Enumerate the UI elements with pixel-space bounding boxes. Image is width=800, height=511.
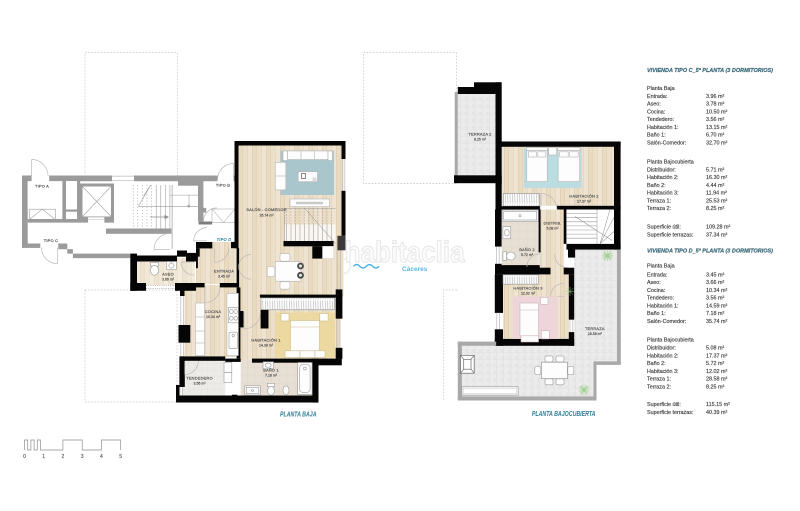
svg-text:3.45 m²: 3.45 m²: [706, 273, 724, 279]
svg-text:3.66 m²: 3.66 m²: [706, 280, 724, 286]
svg-text:3.56 m²: 3.56 m²: [706, 117, 724, 123]
svg-text:TIPO D: TIPO D: [217, 237, 232, 242]
svg-text:7.18 m²: 7.18 m²: [265, 374, 278, 378]
svg-text:13.15 m²: 13.15 m²: [706, 125, 727, 131]
svg-text:Entrada:: Entrada:: [647, 273, 667, 279]
svg-text:10.34 m²: 10.34 m²: [206, 315, 221, 319]
svg-text:Habitación 1:: Habitación 1:: [647, 125, 678, 131]
svg-text:109.28 m²: 109.28 m²: [706, 225, 730, 231]
svg-text:8.25 m²: 8.25 m²: [706, 384, 724, 390]
svg-text:HABITACIÓN 3: HABITACIÓN 3: [513, 285, 543, 290]
svg-text:25.53 m²: 25.53 m²: [706, 198, 727, 204]
svg-text:11.94 m²: 11.94 m²: [706, 191, 727, 197]
svg-text:HABITACIÓN 2: HABITACIÓN 2: [569, 194, 599, 199]
svg-text:4.44 m²: 4.44 m²: [706, 183, 724, 189]
svg-text:Terraza 1:: Terraza 1:: [647, 377, 671, 383]
svg-text:17.37 m²: 17.37 m²: [577, 200, 592, 204]
svg-text:TENDEDERO: TENDEDERO: [186, 376, 212, 381]
svg-text:14.59 m²: 14.59 m²: [706, 303, 727, 309]
svg-text:3.96 m²: 3.96 m²: [706, 94, 724, 100]
svg-text:Distribuidor:: Distribuidor:: [647, 346, 676, 352]
svg-text:SALÓN - COMEDOR: SALÓN - COMEDOR: [246, 207, 286, 212]
svg-text:Terraza 2:: Terraza 2:: [647, 206, 671, 212]
svg-text:5.08 m²: 5.08 m²: [706, 346, 724, 352]
svg-text:Planta Baja: Planta Baja: [647, 86, 675, 92]
svg-text:Habitación 3:: Habitación 3:: [647, 191, 678, 197]
svg-text:7.18 m²: 7.18 m²: [706, 311, 724, 317]
svg-text:37.34 m²: 37.34 m²: [706, 232, 727, 238]
svg-text:28.58 m²: 28.58 m²: [706, 377, 727, 383]
svg-text:Entrada:: Entrada:: [647, 94, 667, 100]
svg-text:HABITACIÓN 1: HABITACIÓN 1: [251, 338, 281, 343]
svg-text:Distribuidor:: Distribuidor:: [647, 168, 676, 174]
svg-text:TERRAZA 2: TERRAZA 2: [468, 132, 492, 137]
svg-text:Tendedero:: Tendedero:: [647, 296, 674, 302]
svg-text:0: 0: [23, 454, 26, 460]
svg-text:8.25 m²: 8.25 m²: [474, 138, 487, 142]
svg-text:Aseo:: Aseo:: [647, 280, 661, 286]
svg-text:32.70 m²: 32.70 m²: [706, 140, 727, 146]
svg-text:BAÑO 1: BAÑO 1: [263, 368, 279, 373]
svg-text:5.72 m²: 5.72 m²: [706, 361, 724, 367]
svg-text:BAÑO 2: BAÑO 2: [519, 247, 535, 252]
svg-text:Cocina:: Cocina:: [647, 109, 665, 115]
svg-text:COCINA: COCINA: [205, 309, 222, 314]
svg-text:40.39 m²: 40.39 m²: [706, 410, 727, 416]
svg-text:3.66 m²: 3.66 m²: [162, 278, 175, 282]
svg-text:PLANTA BAJOCUBIERTA: PLANTA BAJOCUBIERTA: [532, 411, 596, 418]
svg-text:10.34 m²: 10.34 m²: [706, 288, 727, 294]
svg-text:Superficie terrazas:: Superficie terrazas:: [647, 410, 693, 416]
svg-text:ASEO: ASEO: [162, 272, 174, 277]
svg-text:TIPO A: TIPO A: [35, 183, 49, 188]
svg-text:Tendedero:: Tendedero:: [647, 117, 674, 123]
svg-text:3.56 m²: 3.56 m²: [193, 382, 206, 386]
svg-text:Planta Bajocubierta: Planta Bajocubierta: [647, 160, 694, 166]
svg-text:3.45 m²: 3.45 m²: [218, 275, 231, 279]
svg-text:10.50 m²: 10.50 m²: [706, 109, 727, 115]
svg-text:12.02 m²: 12.02 m²: [521, 291, 536, 295]
svg-text:Superficie terrazas:: Superficie terrazas:: [647, 232, 693, 238]
svg-text:Cocina:: Cocina:: [647, 288, 665, 294]
svg-text:DISTRIB.: DISTRIB.: [543, 221, 561, 226]
svg-text:Habitación 2:: Habitación 2:: [647, 353, 678, 359]
svg-text:Cáceres: Cáceres: [402, 266, 428, 273]
svg-text:PLANTA BAJA: PLANTA BAJA: [280, 411, 317, 418]
svg-text:Baño 1:: Baño 1:: [647, 133, 666, 139]
svg-text:Habitación 3:: Habitación 3:: [647, 369, 678, 375]
svg-text:Superficie útil:: Superficie útil:: [647, 402, 681, 408]
svg-text:1: 1: [42, 454, 45, 460]
svg-text:35.74 m²: 35.74 m²: [706, 319, 727, 325]
svg-text:5.08 m²: 5.08 m²: [546, 227, 559, 231]
svg-text:Planta Baja: Planta Baja: [647, 264, 675, 270]
svg-text:17.37 m²: 17.37 m²: [706, 353, 727, 359]
svg-text:habitaclia: habitaclia: [345, 236, 465, 269]
svg-text:5.72 m²: 5.72 m²: [521, 253, 534, 257]
svg-text:3: 3: [81, 454, 84, 460]
svg-text:12.02 m²: 12.02 m²: [706, 369, 727, 375]
svg-text:Habitación 1:: Habitación 1:: [647, 303, 678, 309]
svg-text:28.58 m²: 28.58 m²: [588, 332, 603, 336]
svg-text:16.30 m²: 16.30 m²: [706, 175, 727, 181]
svg-text:Superficie útil:: Superficie útil:: [647, 225, 681, 231]
svg-text:Planta Bajocubierta: Planta Bajocubierta: [647, 338, 694, 344]
svg-text:4: 4: [100, 454, 103, 460]
svg-text:35.74 m²: 35.74 m²: [260, 214, 275, 218]
svg-text:6.70 m²: 6.70 m²: [706, 133, 724, 139]
svg-text:8.25 m²: 8.25 m²: [706, 206, 724, 212]
svg-text:2: 2: [62, 454, 65, 460]
svg-text:Baño 2:: Baño 2:: [647, 361, 666, 367]
svg-text:Aseo:: Aseo:: [647, 102, 661, 108]
svg-text:Terraza 1:: Terraza 1:: [647, 198, 671, 204]
svg-text:Terraza 2:: Terraza 2:: [647, 384, 671, 390]
svg-text:TERRAZA: TERRAZA: [585, 326, 605, 331]
svg-text:Salón-Comedor:: Salón-Comedor:: [647, 319, 686, 325]
svg-text:VIVIENDA TIPO C_5ª PLANTA (3 D: VIVIENDA TIPO C_5ª PLANTA (3 DORMITORIOS…: [647, 68, 773, 74]
svg-text:5.71 m²: 5.71 m²: [706, 168, 724, 174]
svg-text:115.15 m²: 115.15 m²: [706, 402, 730, 408]
svg-text:5: 5: [119, 454, 122, 460]
svg-text:TIPO C: TIPO C: [44, 238, 59, 243]
svg-text:14.39 m²: 14.39 m²: [259, 344, 274, 348]
svg-text:3.56 m²: 3.56 m²: [706, 296, 724, 302]
svg-text:3.78 m²: 3.78 m²: [706, 102, 724, 108]
svg-text:TIPO B: TIPO B: [216, 183, 230, 188]
svg-text:Habitación 2:: Habitación 2:: [647, 175, 678, 181]
svg-text:VIVIENDA TIPO D_5ª PLANTA (3 D: VIVIENDA TIPO D_5ª PLANTA (3 DORMITORIOS…: [647, 249, 773, 255]
svg-text:ENTRADA: ENTRADA: [214, 269, 234, 274]
svg-text:Baño 1:: Baño 1:: [647, 311, 666, 317]
svg-text:Baño 2:: Baño 2:: [647, 183, 666, 189]
svg-text:Salón-Comedor:: Salón-Comedor:: [647, 140, 686, 146]
